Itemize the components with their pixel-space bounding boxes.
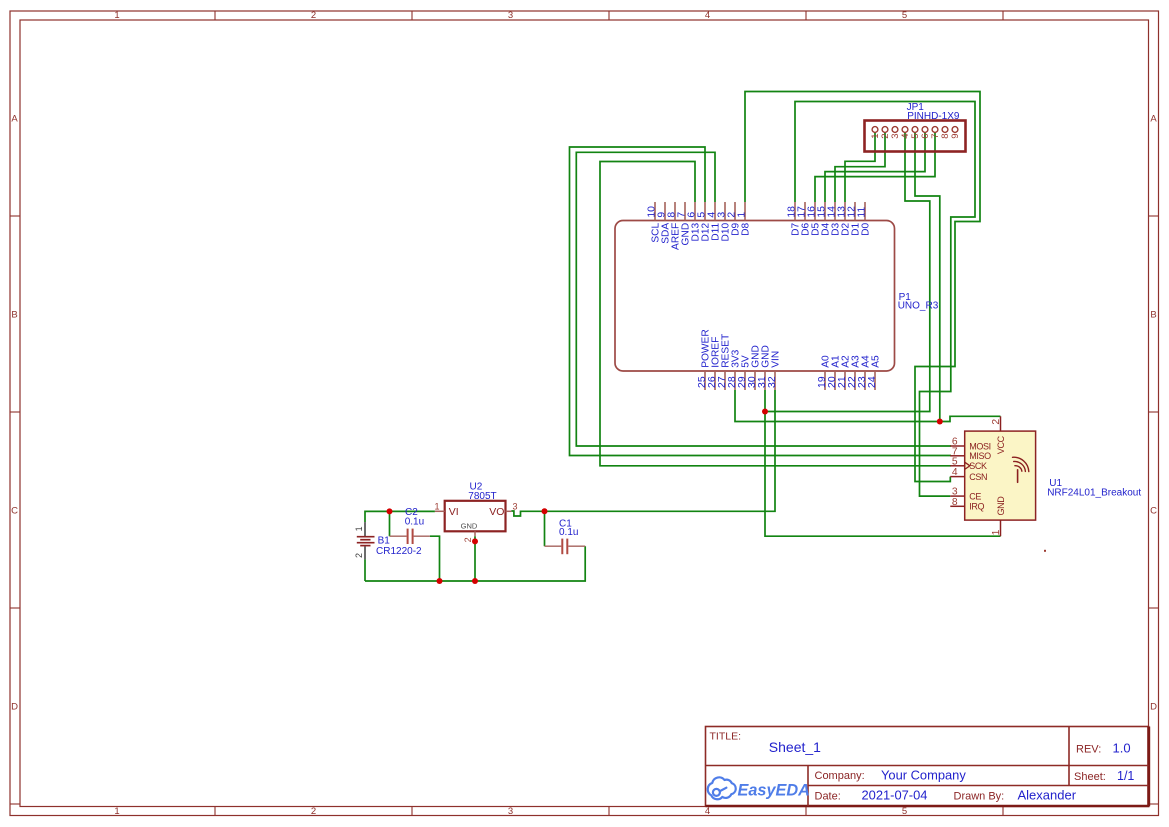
svg-text:SCK: SCK — [969, 461, 987, 471]
svg-text:Drawn By:: Drawn By: — [954, 791, 1005, 803]
svg-text:A: A — [1150, 114, 1157, 125]
svg-text:GND: GND — [461, 521, 478, 530]
svg-text:B1: B1 — [378, 535, 391, 546]
svg-text:4: 4 — [705, 806, 710, 817]
svg-text:2: 2 — [311, 806, 316, 817]
svg-text:2021-07-04: 2021-07-04 — [862, 788, 928, 803]
svg-text:Alexander: Alexander — [1018, 788, 1077, 803]
svg-text:Your Company: Your Company — [881, 768, 966, 783]
svg-text:VO: VO — [489, 506, 504, 518]
svg-text:1/1: 1/1 — [1117, 769, 1134, 783]
svg-text:11: 11 — [857, 207, 868, 218]
svg-text:NRF24L01_Breakout: NRF24L01_Breakout — [1047, 487, 1141, 498]
svg-text:2: 2 — [991, 419, 1002, 425]
svg-text:32: 32 — [767, 376, 778, 388]
svg-text:Sheet_1: Sheet_1 — [769, 739, 821, 755]
svg-text:Sheet:: Sheet: — [1074, 771, 1106, 783]
svg-text:3: 3 — [508, 806, 513, 817]
svg-text:0.1u: 0.1u — [559, 527, 578, 538]
svg-text:3: 3 — [513, 501, 518, 511]
svg-text:VIN: VIN — [771, 351, 782, 368]
svg-text:UNO_R3: UNO_R3 — [898, 301, 939, 312]
svg-text:EasyEDA: EasyEDA — [738, 781, 810, 799]
svg-text:C: C — [11, 506, 18, 517]
svg-text:TITLE:: TITLE: — [710, 730, 742, 742]
svg-text:1.0: 1.0 — [1113, 741, 1131, 756]
svg-text:2: 2 — [311, 10, 316, 21]
svg-text:CE: CE — [969, 492, 981, 502]
svg-text:5: 5 — [902, 806, 907, 817]
svg-text:5: 5 — [952, 456, 958, 467]
svg-text:D0: D0 — [861, 222, 872, 235]
svg-text:4: 4 — [705, 10, 710, 21]
svg-text:24: 24 — [867, 376, 878, 388]
svg-text:CSN: CSN — [969, 472, 987, 482]
svg-text:2: 2 — [463, 537, 473, 542]
svg-text:Company:: Company: — [815, 770, 865, 782]
svg-text:IRQ: IRQ — [969, 502, 984, 512]
svg-text:1: 1 — [435, 501, 440, 511]
svg-text:9: 9 — [950, 133, 961, 138]
svg-text:MISO: MISO — [969, 451, 991, 461]
svg-text:1: 1 — [114, 10, 119, 21]
svg-text:B: B — [1150, 310, 1156, 321]
svg-text:A: A — [11, 114, 18, 125]
svg-text:C: C — [1150, 506, 1157, 517]
svg-text:3: 3 — [508, 10, 513, 21]
svg-text:0.1u: 0.1u — [405, 517, 424, 528]
svg-text:CR1220-2: CR1220-2 — [376, 546, 422, 557]
svg-text:D: D — [11, 702, 18, 713]
svg-text:4: 4 — [952, 467, 958, 478]
svg-text:VCC: VCC — [996, 435, 1006, 454]
svg-text:5: 5 — [902, 10, 907, 21]
svg-text:1: 1 — [991, 529, 1002, 535]
svg-text:VI: VI — [449, 506, 459, 518]
svg-text:8: 8 — [952, 497, 958, 508]
svg-text:1: 1 — [737, 212, 748, 218]
svg-text:1: 1 — [114, 806, 119, 817]
svg-text:D8: D8 — [741, 222, 752, 235]
svg-text:Date:: Date: — [815, 791, 841, 803]
svg-text:GND: GND — [996, 496, 1006, 516]
svg-text:MOSI: MOSI — [969, 441, 990, 451]
svg-text:2: 2 — [354, 553, 364, 558]
svg-text:1: 1 — [354, 526, 364, 531]
svg-text:B: B — [11, 310, 17, 321]
svg-text:REV:: REV: — [1076, 744, 1101, 756]
svg-text:D: D — [1150, 702, 1157, 713]
svg-text:A5: A5 — [871, 355, 882, 368]
